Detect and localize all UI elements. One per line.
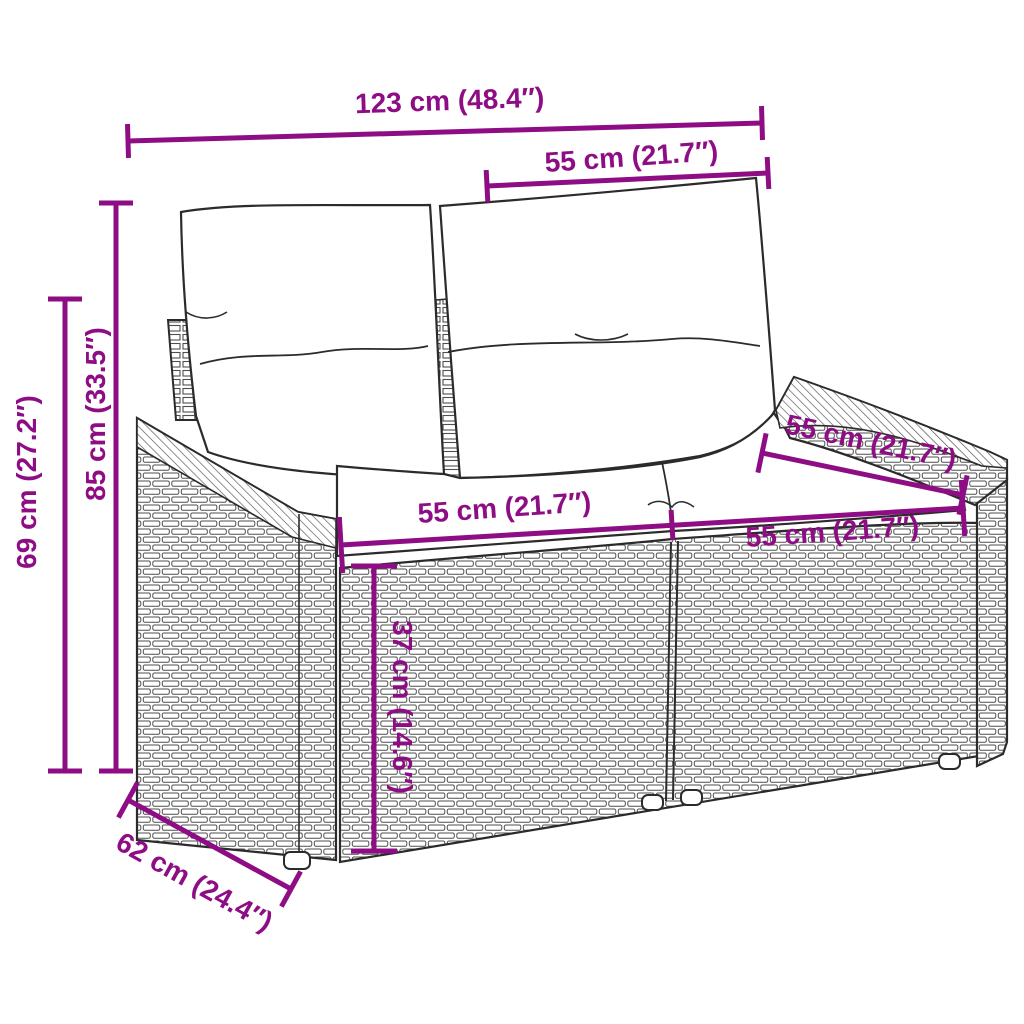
foot-left [284,852,310,869]
right-side-panel [977,478,1007,766]
armrest-height-label: 69 cm (27.2″) [11,395,42,569]
seat-height-label: 37 cm (14.6″) [387,620,418,794]
sofa-dimension-drawing: 123 cm (48.4″) 55 cm (21.7″) 85 cm (33.5… [0,0,1024,1024]
dim-armrest-height [48,299,82,771]
backrest-width-label: 55 cm (21.7″) [544,135,719,178]
left-back-cushion [181,205,444,476]
base-front-panel [340,523,1003,862]
overall-width-label: 123 cm (48.4″) [355,82,545,120]
left-armrest [137,418,336,860]
foot-mid-right [681,790,702,805]
foot-mid-left [642,795,663,810]
foot-right [939,754,960,769]
right-back-cushion [440,178,775,478]
dimension-diagram: 123 cm (48.4″) 55 cm (21.7″) 85 cm (33.5… [0,0,1024,1024]
overall-height-label: 85 cm (33.5″) [80,327,111,501]
